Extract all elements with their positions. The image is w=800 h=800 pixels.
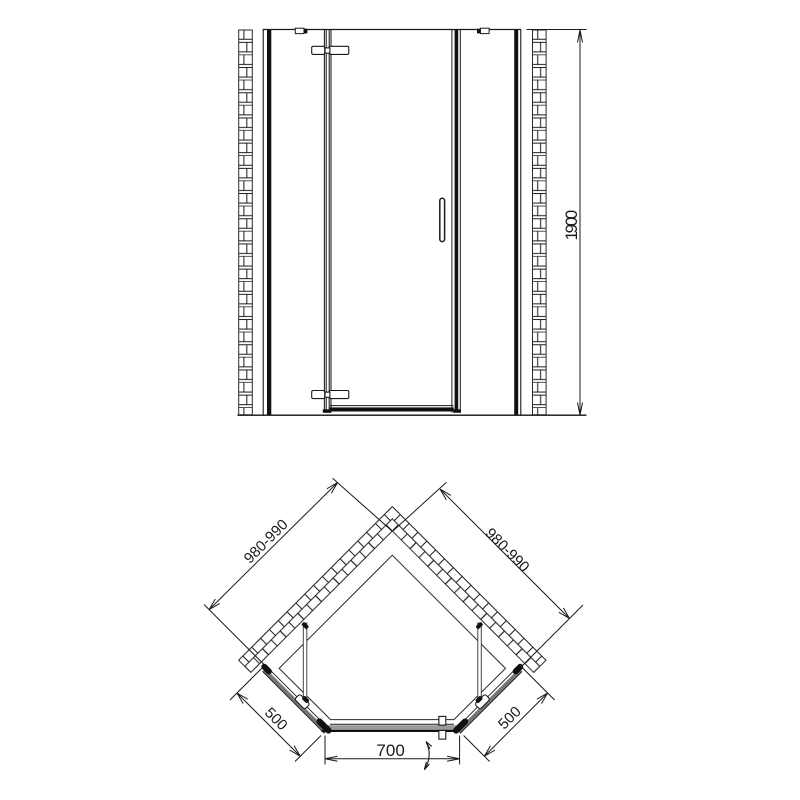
svg-text:980-990: 980-990 — [482, 525, 533, 576]
svg-text:1900: 1900 — [562, 210, 581, 240]
svg-text:500: 500 — [261, 704, 291, 734]
svg-text:980-990: 980-990 — [241, 516, 292, 567]
svg-text:500: 500 — [495, 703, 525, 733]
svg-text:700: 700 — [376, 741, 404, 760]
